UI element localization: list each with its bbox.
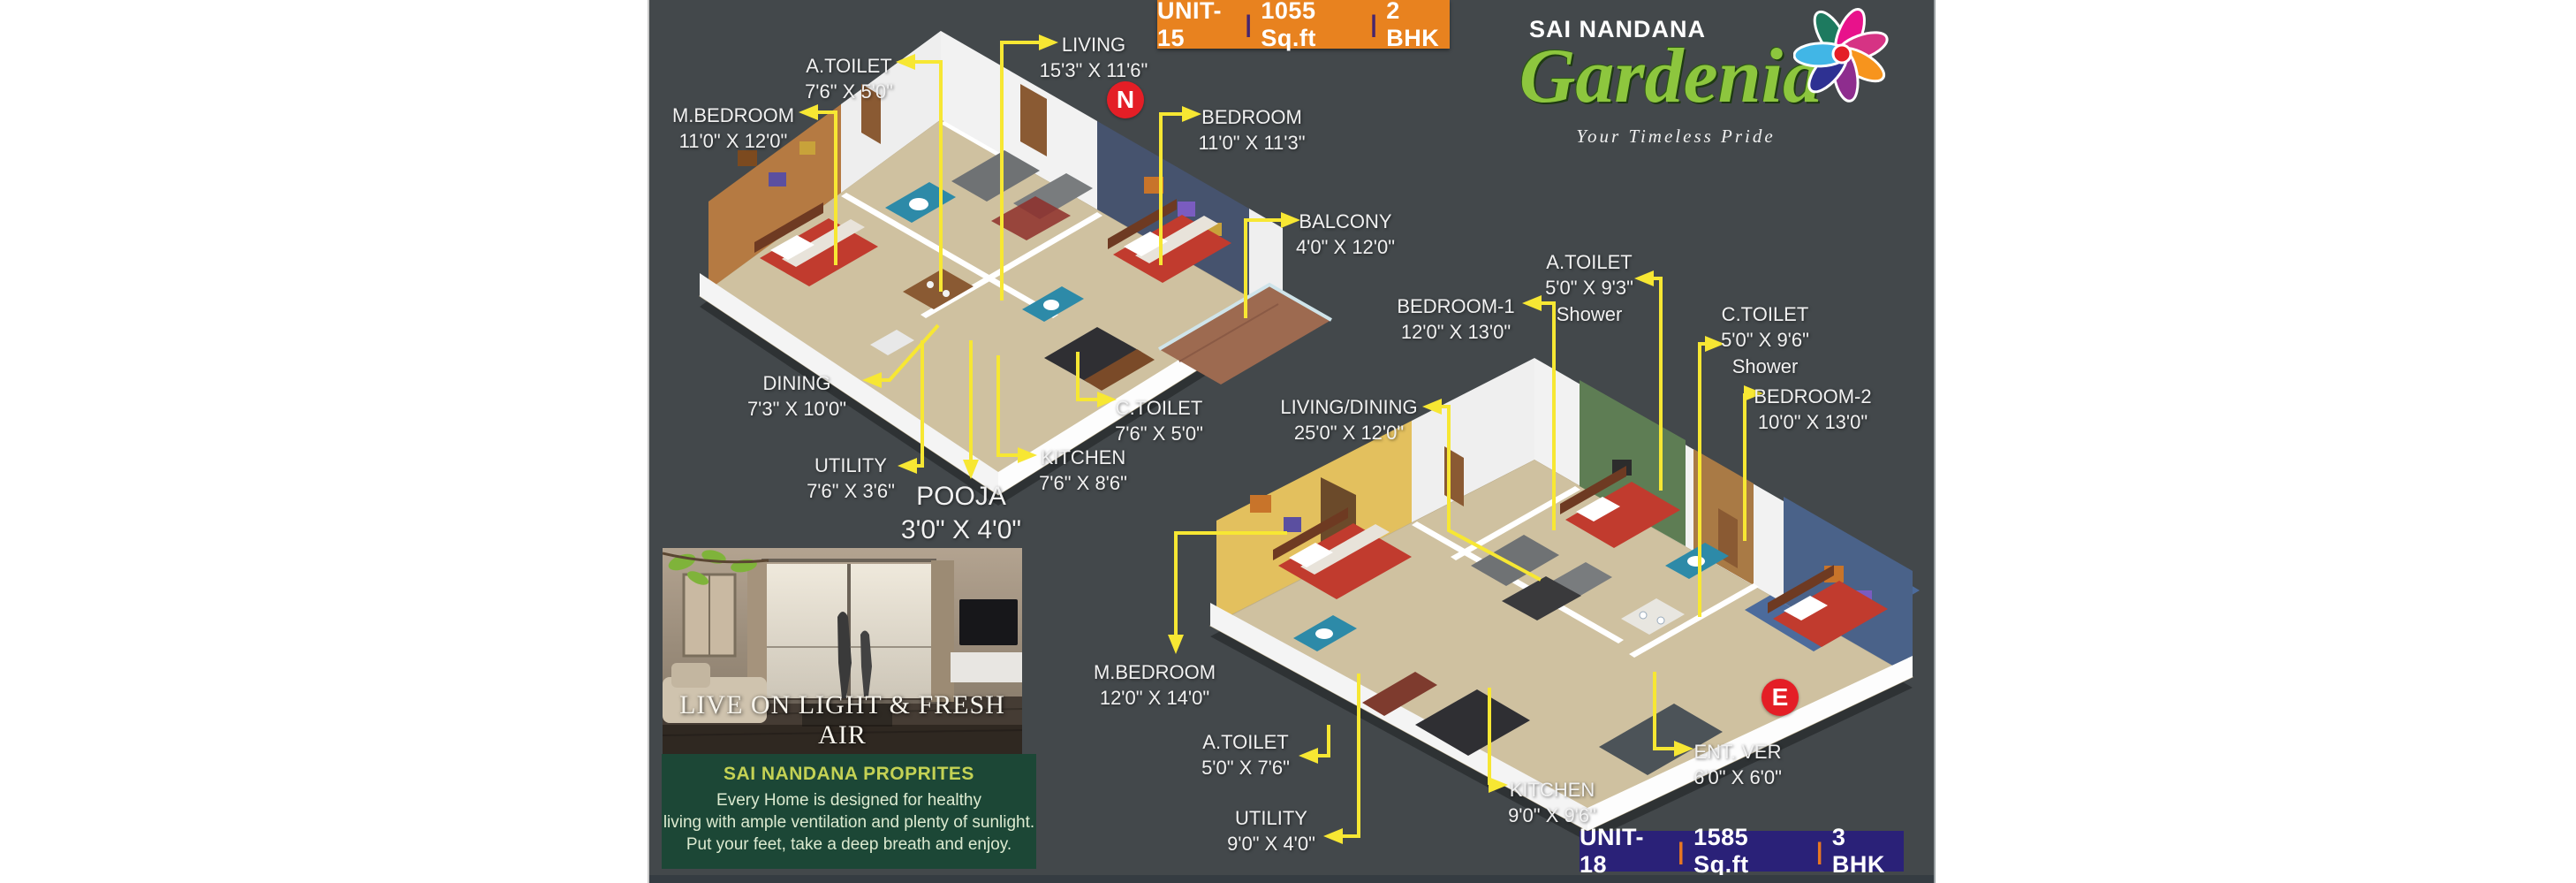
room-dims: 12'0" X 13'0": [1397, 319, 1514, 345]
leader-line: [1489, 688, 1489, 785]
unit15-banner-type: 2 BHK: [1386, 0, 1450, 52]
label-unit18-a_toilet_top: A.TOILET5'0" X 9'3"Shower: [1545, 249, 1633, 327]
room-dims: 10'0" X 13'0": [1754, 409, 1871, 435]
label-unit15-kitchen: KITCHEN7'6" X 8'6": [1039, 445, 1127, 497]
room-name: C.TOILET: [1115, 395, 1203, 421]
east-marker: E: [1762, 679, 1799, 716]
info-box: SAI NANDANA PROPRITES Every Home is desi…: [662, 754, 1036, 869]
room-note: Shower: [1545, 301, 1633, 327]
info-box-line: Every Home is designed for healthy: [662, 789, 1036, 811]
room-name: UTILITY: [1227, 805, 1315, 831]
leader-arrowhead-icon: [898, 458, 917, 474]
room-name: LIVING/DINING: [1280, 394, 1417, 420]
room-dims: 4'0" X 12'0": [1296, 234, 1395, 260]
room-name: DINING: [747, 370, 846, 396]
leader-arrowhead-icon: [1299, 748, 1318, 764]
leader-line: [1744, 393, 1745, 541]
room-dims: 5'0" X 9'3": [1545, 275, 1633, 301]
separator: |: [1245, 11, 1252, 38]
room-name: KITCHEN: [1039, 445, 1127, 470]
photo-caption: LIVE ON LIGHT & FRESH AIR: [663, 690, 1022, 750]
room-dims: 7'6" X 5'0": [1115, 421, 1203, 446]
unit18-banner-unit: UNIT-18: [1580, 824, 1669, 879]
room-dims: 7'6" X 8'6": [1039, 470, 1127, 496]
label-unit15-bedroom: BEDROOM11'0" X 11'3": [1198, 104, 1305, 156]
brand-tagline: Your Timeless Pride: [1543, 126, 1808, 148]
label-unit15-utility: UTILITY7'6" X 3'6": [807, 453, 895, 505]
info-box-heading: SAI NANDANA PROPRITES: [662, 764, 1036, 785]
interior-photo: LIVE ON LIGHT & FRESH AIR: [663, 548, 1022, 756]
room-name: M.BEDROOM: [1094, 659, 1216, 685]
room-name: ENT. VER: [1693, 739, 1782, 765]
unit18-banner: UNIT-18 | 1585 Sq.ft | 3 BHK: [1580, 831, 1904, 872]
room-dims: 5'0" X 9'6": [1721, 327, 1809, 353]
leader-arrowhead-icon: [1323, 828, 1343, 844]
room-name: BEDROOM: [1198, 104, 1305, 130]
separator: |: [1370, 11, 1377, 38]
room-name: KITCHEN: [1508, 777, 1596, 803]
room-dims: 7'6" X 5'0": [805, 79, 893, 104]
room-dims: 7'3" X 10'0": [747, 396, 846, 422]
floorplan-unit15: [700, 31, 1331, 506]
unit18-banner-type: 3 BHK: [1832, 824, 1904, 879]
label-unit18-c_toilet: C.TOILET5'0" X 9'6"Shower: [1721, 301, 1809, 379]
room-dims: 12'0" X 14'0": [1094, 685, 1216, 711]
room-note: Shower: [1721, 354, 1809, 379]
leader-arrowhead-icon: [1634, 270, 1654, 286]
unit15-banner-area: 1055 Sq.ft: [1261, 0, 1361, 52]
room-dims: 5'0" X 7'6": [1201, 755, 1290, 780]
room-name: BEDROOM-1: [1397, 293, 1514, 319]
unit18-banner-area: 1585 Sq.ft: [1693, 824, 1807, 879]
info-box-line: living with ample ventilation and plenty…: [662, 811, 1036, 834]
label-unit18-bedroom1: BEDROOM-112'0" X 13'0": [1397, 293, 1514, 346]
room-dims: 9'0" X 4'0": [1227, 831, 1315, 856]
room-dims: 3'0" X 4'0": [901, 514, 1021, 547]
room-dims: 7'6" X 3'6": [807, 478, 895, 504]
room-name: A.TOILET: [1201, 729, 1290, 755]
room-dims: 11'0" X 12'0": [672, 128, 794, 154]
separator: |: [1678, 838, 1685, 865]
leader-arrowhead-icon: [1522, 295, 1542, 311]
room-name: M.BEDROOM: [672, 103, 794, 128]
north-marker: N: [1107, 81, 1144, 118]
label-unit15-pooja: POOJA3'0" X 4'0": [901, 480, 1021, 546]
label-unit15-m_bedroom: M.BEDROOM11'0" X 12'0": [672, 103, 794, 155]
leader-arrowhead-icon: [1168, 635, 1184, 654]
room-dims: 15'3" X 11'6": [1040, 57, 1148, 83]
room-dims: 11'0" X 11'3": [1198, 130, 1305, 156]
room-name: LIVING: [1040, 32, 1148, 57]
room-name: A.TOILET: [1545, 249, 1633, 275]
leader-arrowhead-icon: [799, 104, 818, 120]
leader-line: [1318, 725, 1329, 756]
flyer: UNIT-15 | 1055 Sq.ft | 2 BHK SAI NANDANA…: [648, 0, 1936, 883]
room-name: POOJA: [901, 480, 1021, 514]
unit15-banner-unit: UNIT-15: [1157, 0, 1236, 52]
label-unit18-bedroom2: BEDROOM-210'0" X 13'0": [1754, 384, 1871, 436]
separator: |: [1816, 838, 1823, 865]
room-name: A.TOILET: [805, 53, 893, 79]
room-name: BALCONY: [1296, 209, 1395, 234]
page-background: UNIT-15 | 1055 Sq.ft | 2 BHK SAI NANDANA…: [0, 0, 2576, 883]
label-unit15-dining: DINING7'3" X 10'0": [747, 370, 846, 422]
bottom-edge-strip: [649, 875, 1934, 883]
label-unit18-a_toilet: A.TOILET5'0" X 7'6": [1201, 729, 1290, 781]
label-unit18-utility: UTILITY9'0" X 4'0": [1227, 805, 1315, 857]
room-dims: 6'0" X 6'0": [1693, 765, 1782, 790]
brand-logo: Gardenia: [1503, 32, 1838, 121]
label-unit15-living: LIVING15'3" X 11'6": [1040, 32, 1148, 84]
label-unit15-a_toilet: A.TOILET7'6" X 5'0": [805, 53, 893, 105]
label-unit18-kitchen: KITCHEN9'0" X 9'6": [1508, 777, 1596, 829]
label-unit18-living_dining: LIVING/DINING25'0" X 12'0": [1280, 394, 1417, 446]
label-unit15-balcony: BALCONY4'0" X 12'0": [1296, 209, 1395, 261]
label-unit15-c_toilet: C.TOILET7'6" X 5'0": [1115, 395, 1203, 447]
label-unit18-ent_ver: ENT. VER6'0" X 6'0": [1693, 739, 1782, 791]
unit15-banner: UNIT-15 | 1055 Sq.ft | 2 BHK: [1157, 0, 1450, 49]
room-name: UTILITY: [807, 453, 895, 478]
info-box-line: Put your feet, take a deep breath and en…: [662, 834, 1036, 856]
room-dims: 25'0" X 12'0": [1280, 420, 1417, 445]
flower-logo-icon: [1793, 5, 1890, 103]
label-unit18-m_bedroom: M.BEDROOM12'0" X 14'0": [1094, 659, 1216, 712]
room-name: C.TOILET: [1721, 301, 1809, 327]
room-name: BEDROOM-2: [1754, 384, 1871, 409]
